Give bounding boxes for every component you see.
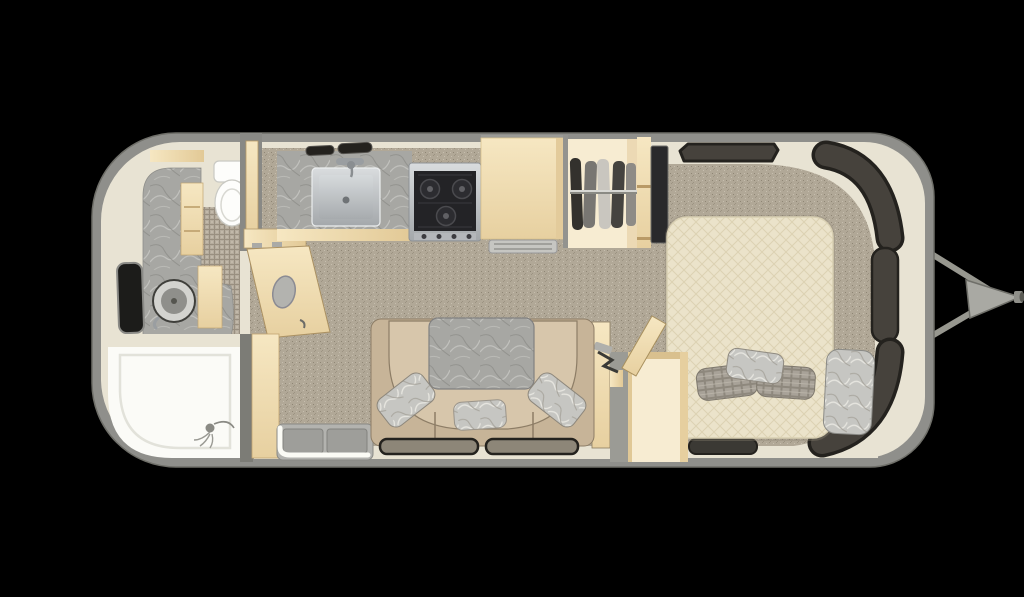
fridge-vent: [489, 240, 557, 253]
shower-head: [206, 424, 215, 433]
garment-4: [611, 161, 625, 228]
shelf-2: [637, 237, 651, 240]
wardrobe: [563, 135, 668, 248]
burner-cap-1: [427, 186, 433, 192]
burner-cap-3: [443, 213, 449, 219]
range-vent-1: [306, 145, 334, 155]
step-tread-1: [283, 429, 323, 453]
shower-side-wall: [240, 334, 253, 462]
entry-side-cabinet: [592, 322, 610, 448]
floor-plan-canvas: [0, 0, 1024, 597]
knob-3: [452, 234, 457, 239]
wardrobe-divider: [563, 135, 568, 248]
vanity-drawer-unit: [181, 183, 203, 255]
refrigerator-group: [481, 135, 563, 253]
kitchen-sink-drain: [343, 197, 350, 204]
bath-shower-partition: [108, 334, 240, 347]
three-burner-cooktop: [409, 163, 481, 241]
fridge-top-trim: [481, 135, 563, 138]
marble-throw: [823, 349, 875, 435]
shower-pan: [108, 347, 240, 458]
burner-cap-2: [459, 186, 465, 192]
sofa-pillow-shape-3: [453, 399, 507, 431]
entry-step: [277, 424, 373, 460]
shelf-1: [637, 185, 651, 188]
dinette-side-cabinet: [252, 334, 279, 458]
garment-2: [583, 161, 597, 228]
sink-drain: [171, 298, 177, 304]
floor-plan-figure: [0, 0, 1024, 597]
vanity-top-shelf: [150, 150, 204, 162]
sofa-pillow-center: [453, 399, 507, 431]
knob-4: [467, 234, 472, 239]
dinette-table: [429, 318, 534, 389]
faucet-spout: [351, 165, 352, 177]
vanity-side-cabinet: [198, 266, 222, 328]
knob-1: [422, 234, 427, 239]
wall-niche: [246, 141, 258, 233]
door-hinge-2: [272, 242, 282, 247]
knob-2: [437, 234, 442, 239]
front-window-middle: [872, 248, 898, 342]
bath-window: [117, 263, 144, 334]
counter-front-edge: [277, 229, 412, 241]
step-tread-2: [327, 429, 367, 453]
bedroom-top-window: [680, 144, 778, 161]
living-window-right: [486, 439, 578, 454]
bedroom-bottom-window: [689, 439, 757, 454]
alcove-right-wall: [680, 352, 688, 462]
garment-5: [626, 163, 636, 226]
living-window-left: [380, 439, 478, 454]
bath-window-group: [117, 263, 144, 334]
tv-panel: [651, 146, 668, 243]
shelf-column: [637, 137, 651, 248]
throw-shape: [823, 349, 875, 435]
range-vent-2: [338, 142, 372, 154]
refrigerator: [481, 138, 563, 239]
fridge-edge-shade: [556, 138, 563, 239]
door-hinge-1: [252, 243, 262, 248]
bed-mattress: [667, 217, 833, 438]
